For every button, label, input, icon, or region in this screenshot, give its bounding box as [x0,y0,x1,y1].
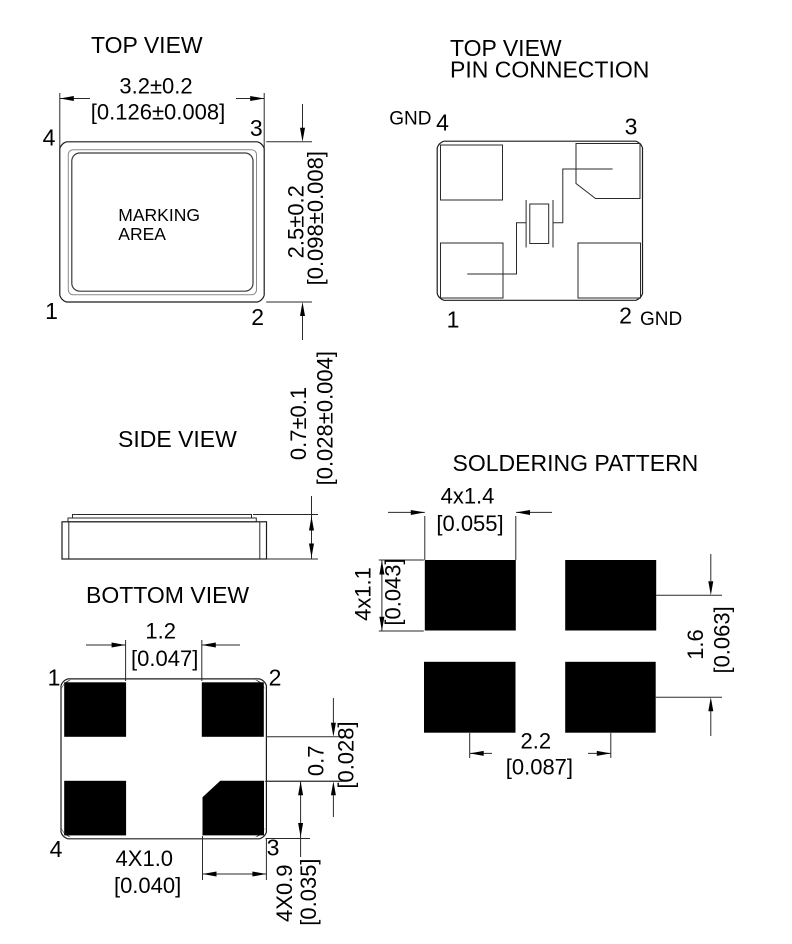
svg-text:2: 2 [269,665,282,691]
svg-text:4X0.9: 4X0.9 [272,864,297,922]
svg-text:0.7: 0.7 [303,746,328,777]
svg-text:1: 1 [447,307,460,333]
svg-text:[0.043]: [0.043] [381,558,406,625]
svg-text:BOTTOM VIEW: BOTTOM VIEW [86,582,249,608]
svg-text:GND: GND [640,309,682,330]
svg-text:[0.098±0.008]: [0.098±0.008] [303,151,328,285]
svg-text:2: 2 [619,303,632,329]
svg-text:4x1.4: 4x1.4 [441,484,495,509]
svg-text:1.2: 1.2 [145,619,176,644]
svg-text:SIDE VIEW: SIDE VIEW [118,426,237,452]
svg-text:2: 2 [251,304,264,330]
svg-text:[0.028±0.004]: [0.028±0.004] [313,351,338,485]
svg-text:0.7±0.1: 0.7±0.1 [286,387,311,460]
svg-text:[0.028]: [0.028] [334,721,359,788]
svg-text:PIN CONNECTION: PIN CONNECTION [450,57,649,83]
svg-text:[0.063]: [0.063] [710,606,735,673]
svg-text:[0.035]: [0.035] [296,858,321,925]
svg-text:4X1.0: 4X1.0 [116,846,174,871]
svg-text:[0.055]: [0.055] [436,511,503,536]
svg-text:MARKING: MARKING [118,205,200,225]
svg-text:AREA: AREA [118,224,166,244]
svg-text:4: 4 [436,110,449,136]
svg-text:4x1.1: 4x1.1 [351,567,376,621]
svg-text:[0.087]: [0.087] [506,755,573,780]
svg-text:4: 4 [43,125,56,151]
svg-text:3.2±0.2: 3.2±0.2 [119,74,192,99]
svg-text:3: 3 [250,115,263,141]
svg-text:4: 4 [50,836,63,862]
svg-text:3: 3 [625,114,638,140]
svg-text:1: 1 [45,298,58,324]
svg-text:1: 1 [48,665,61,691]
svg-text:GND: GND [389,109,431,130]
svg-text:3: 3 [267,834,280,860]
svg-text:SOLDERING PATTERN: SOLDERING PATTERN [453,450,699,476]
svg-text:[0.126±0.008]: [0.126±0.008] [91,100,225,125]
svg-text:1.6: 1.6 [683,629,708,660]
svg-text:2.2: 2.2 [521,729,552,754]
svg-text:[0.040]: [0.040] [114,873,181,898]
svg-text:TOP VIEW: TOP VIEW [91,32,203,58]
svg-text:[0.047]: [0.047] [131,646,198,671]
